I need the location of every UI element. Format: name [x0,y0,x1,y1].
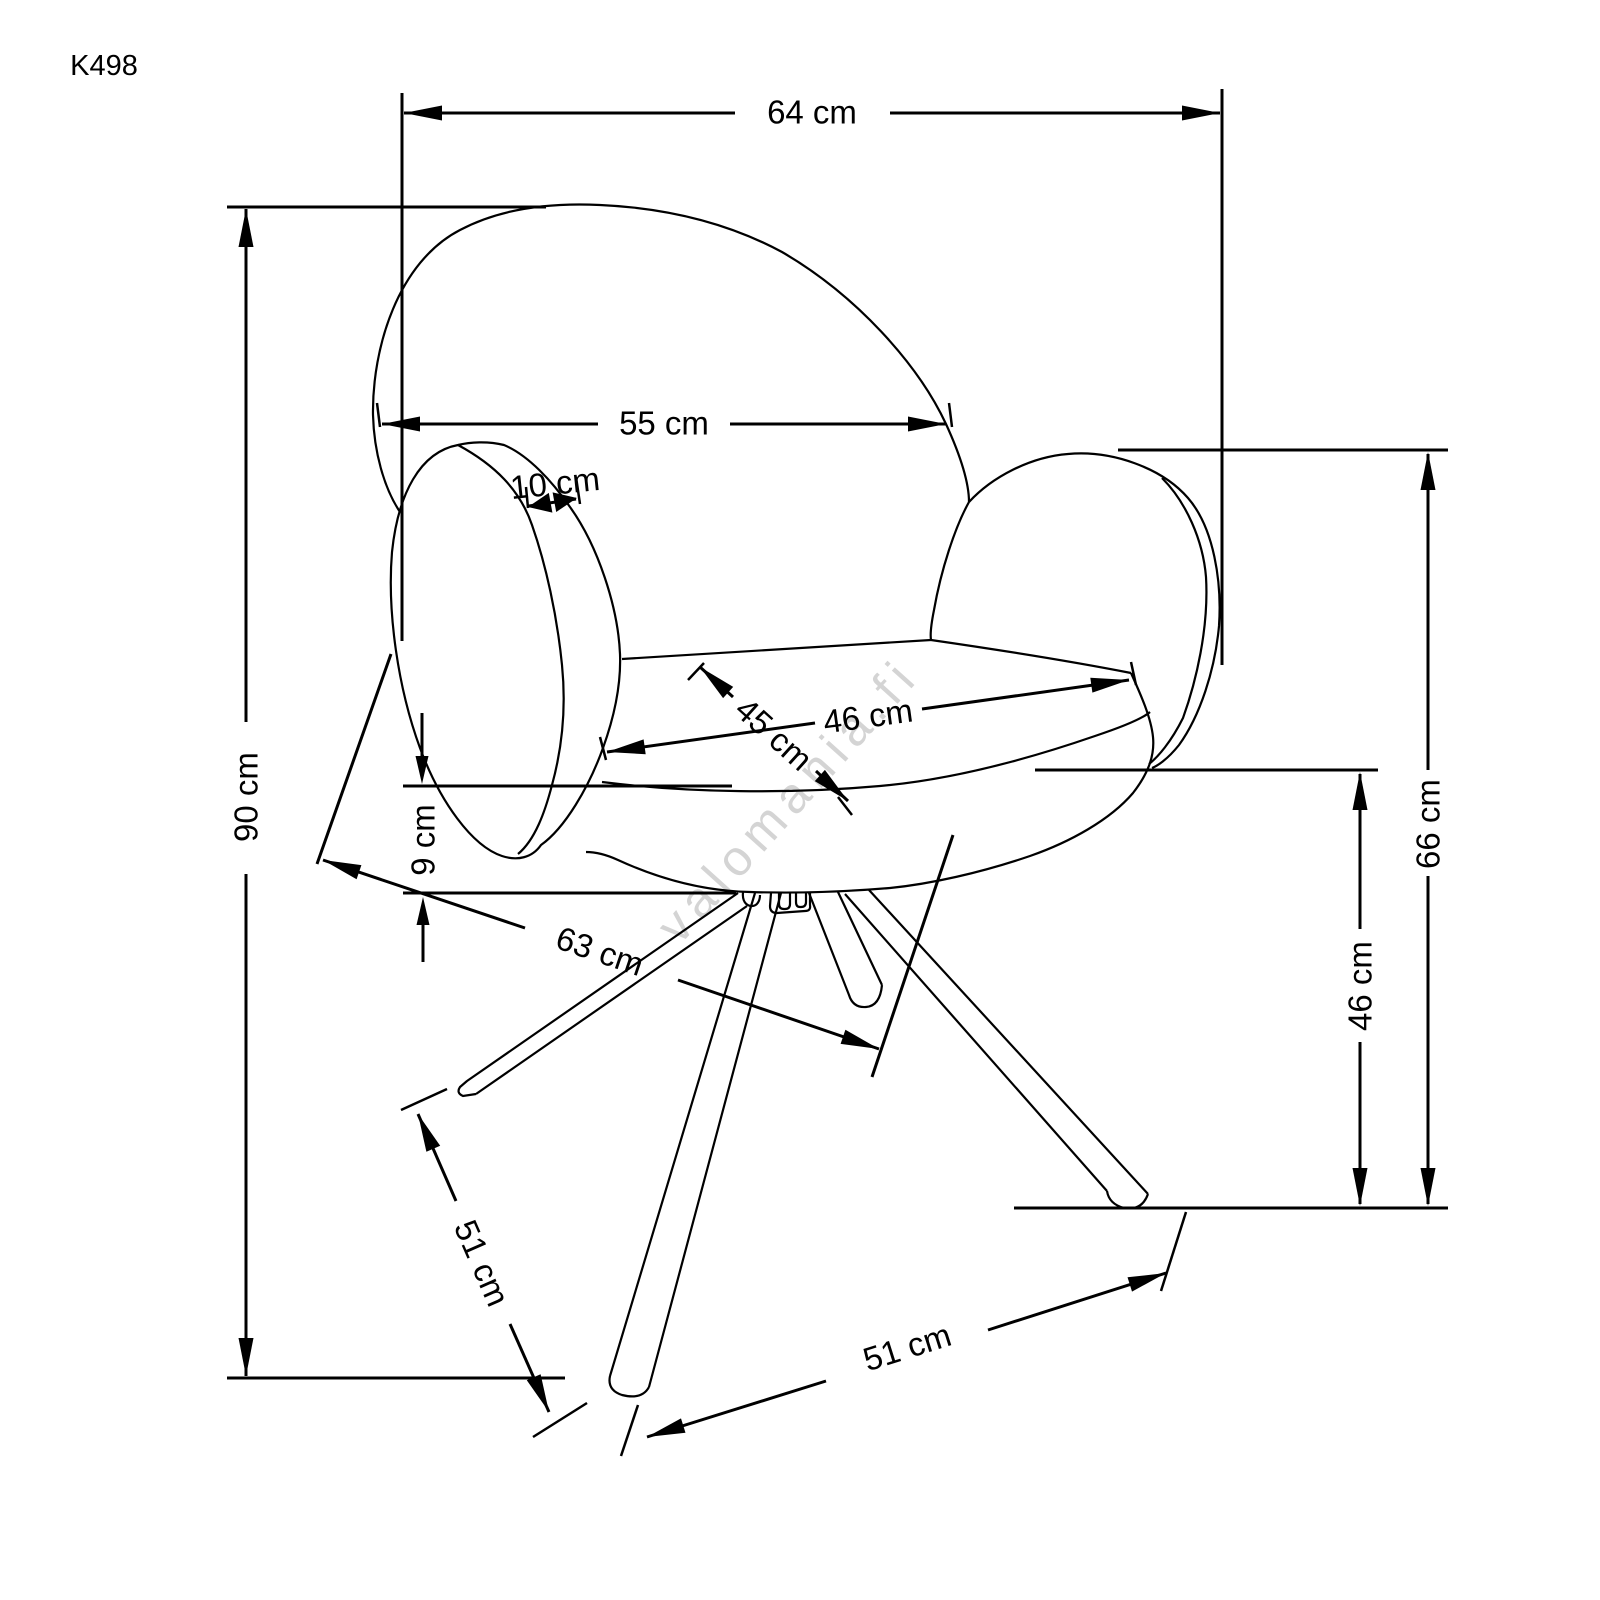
svg-text:K498: K498 [70,50,138,82]
svg-text:90 cm: 90 cm [228,752,265,842]
svg-text:64 cm: 64 cm [767,94,857,131]
svg-text:9 cm: 9 cm [405,804,442,876]
svg-text:66 cm: 66 cm [1410,779,1447,869]
svg-text:55 cm: 55 cm [619,405,709,442]
svg-text:46 cm: 46 cm [1342,941,1379,1031]
